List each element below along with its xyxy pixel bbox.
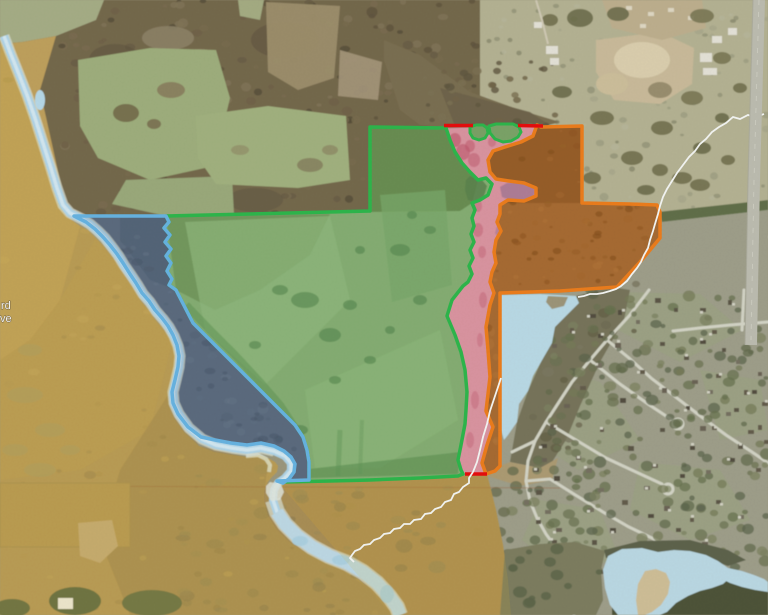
svg-text:rd: rd bbox=[1, 300, 11, 312]
svg-text:ve: ve bbox=[0, 313, 12, 325]
